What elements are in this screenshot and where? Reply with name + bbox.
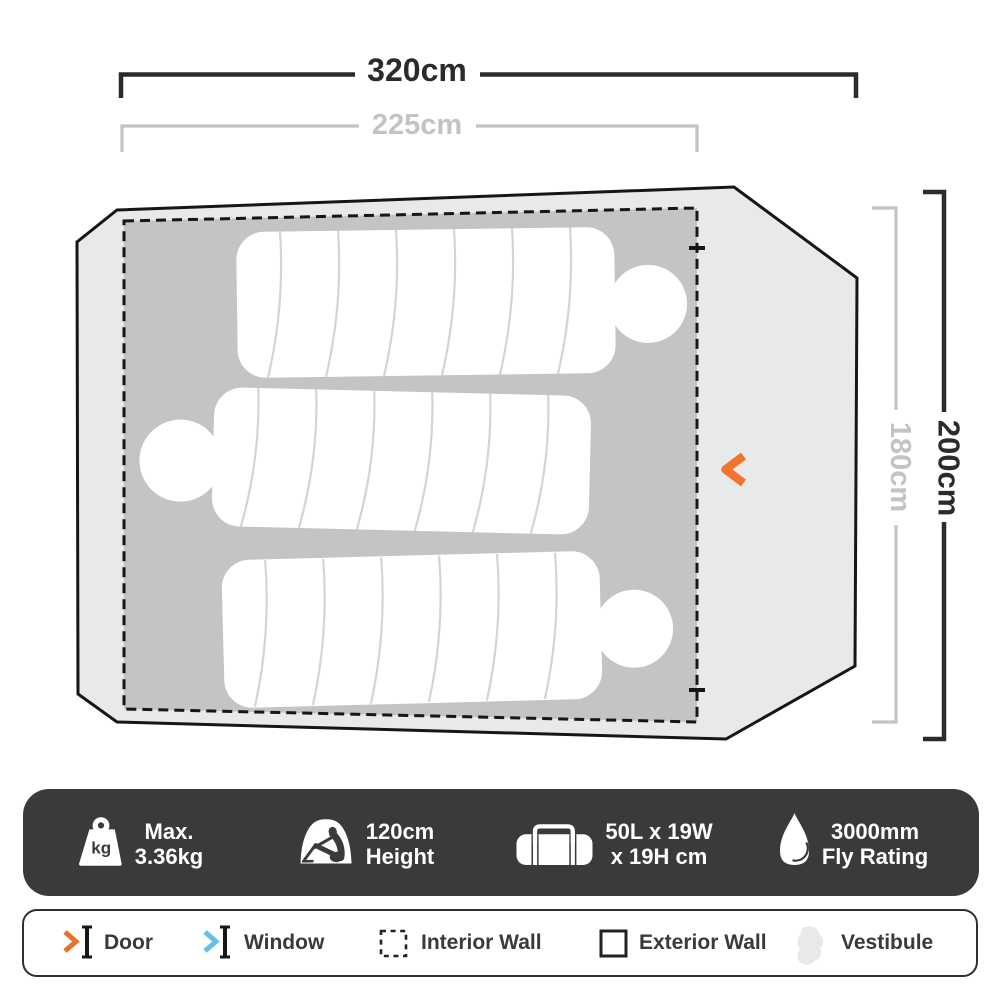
- svg-text:320cm: 320cm: [367, 52, 467, 88]
- svg-text:225cm: 225cm: [372, 109, 462, 141]
- svg-text:200cm: 200cm: [932, 420, 967, 517]
- svg-text:180cm: 180cm: [884, 422, 916, 512]
